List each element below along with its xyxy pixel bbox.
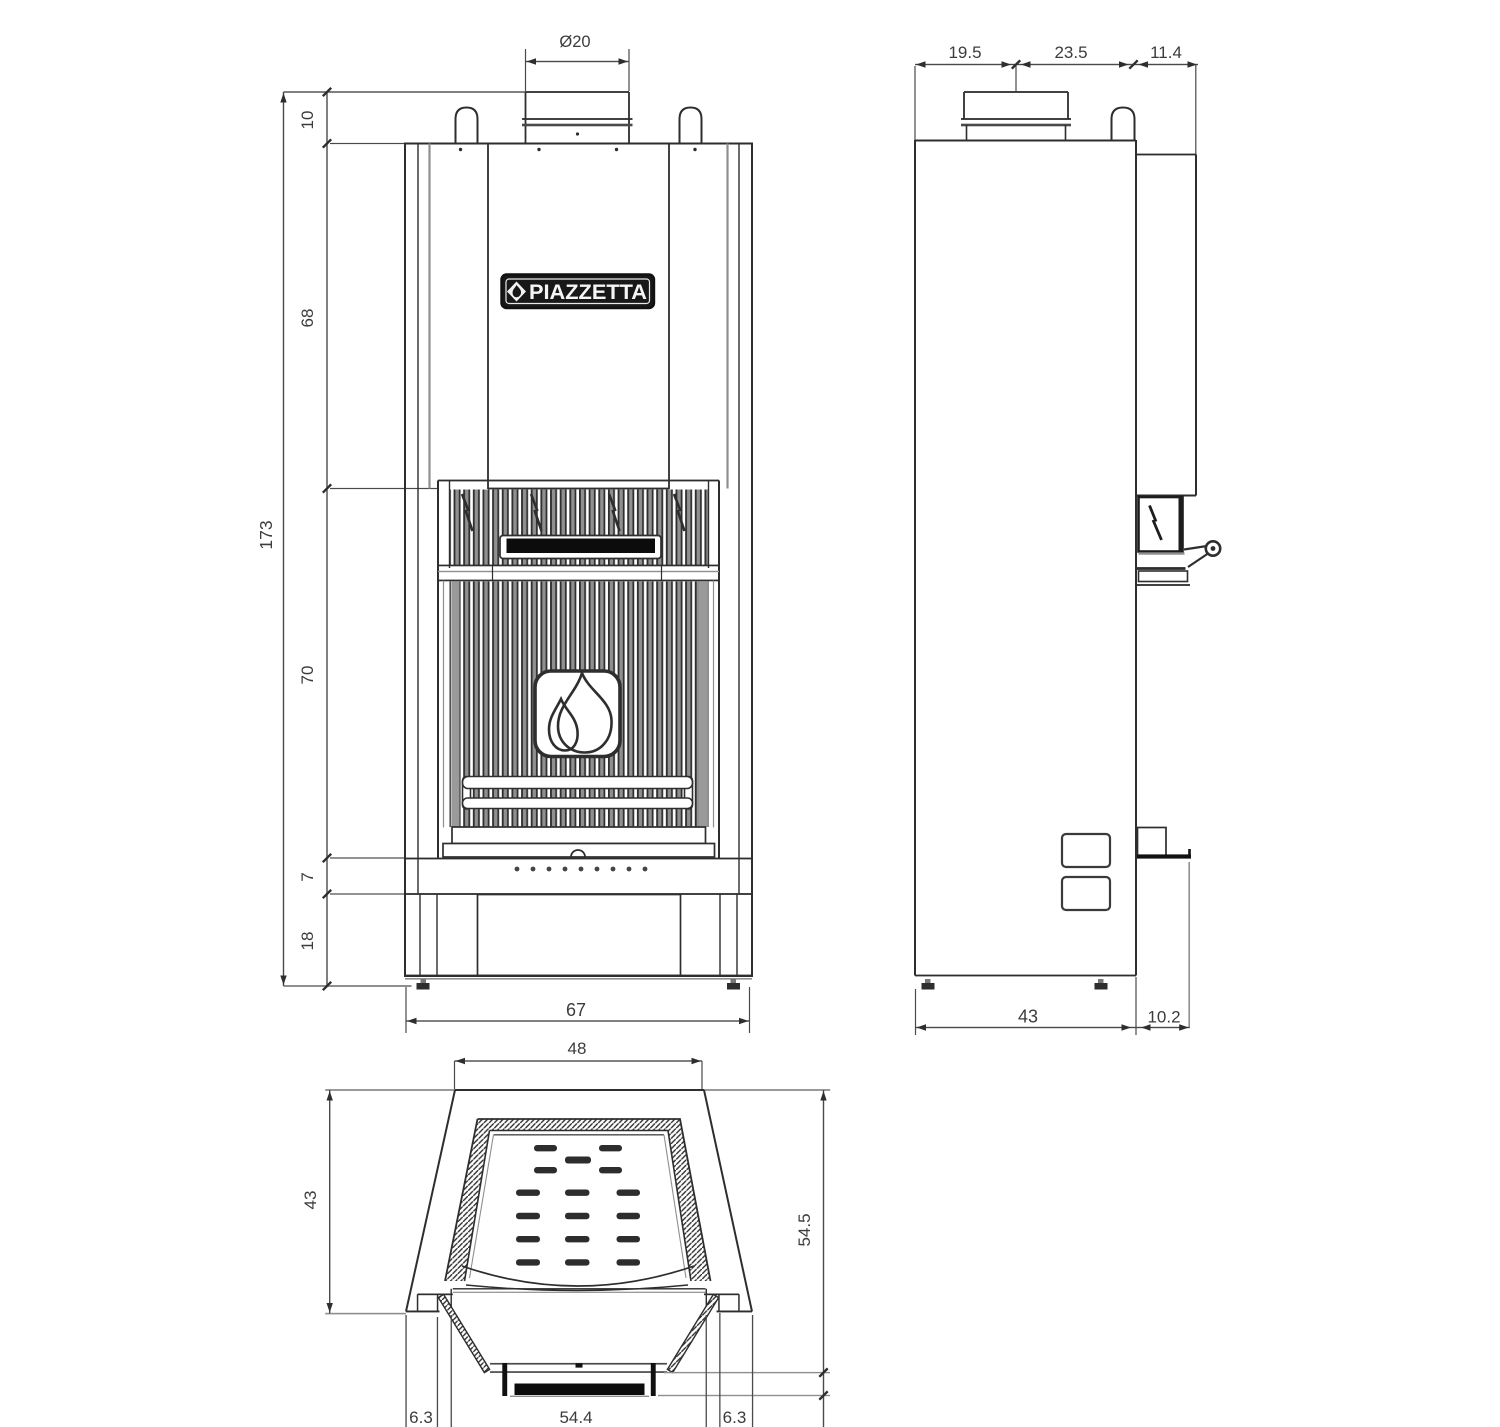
svg-text:10.2: 10.2 [1147,1008,1180,1027]
svg-text:67: 67 [566,1000,586,1020]
svg-text:Ø20: Ø20 [559,33,590,51]
svg-text:19.5: 19.5 [948,43,981,62]
svg-text:23.5: 23.5 [1054,43,1087,62]
svg-text:10: 10 [298,111,317,130]
svg-text:6.3: 6.3 [723,1408,747,1427]
svg-text:11.4: 11.4 [1150,43,1182,62]
svg-text:6.3: 6.3 [409,1408,433,1427]
svg-text:7: 7 [298,872,317,881]
svg-text:54.5: 54.5 [795,1213,814,1246]
svg-text:48: 48 [568,1039,587,1058]
svg-text:68: 68 [298,309,317,328]
svg-text:54.4: 54.4 [559,1408,592,1427]
svg-text:18: 18 [298,932,317,951]
svg-text:43: 43 [1018,1007,1038,1027]
svg-text:173: 173 [256,520,276,549]
svg-text:43: 43 [301,1191,320,1210]
svg-text:PIAZZETTA: PIAZZETTA [529,280,647,304]
svg-text:70: 70 [298,666,317,685]
